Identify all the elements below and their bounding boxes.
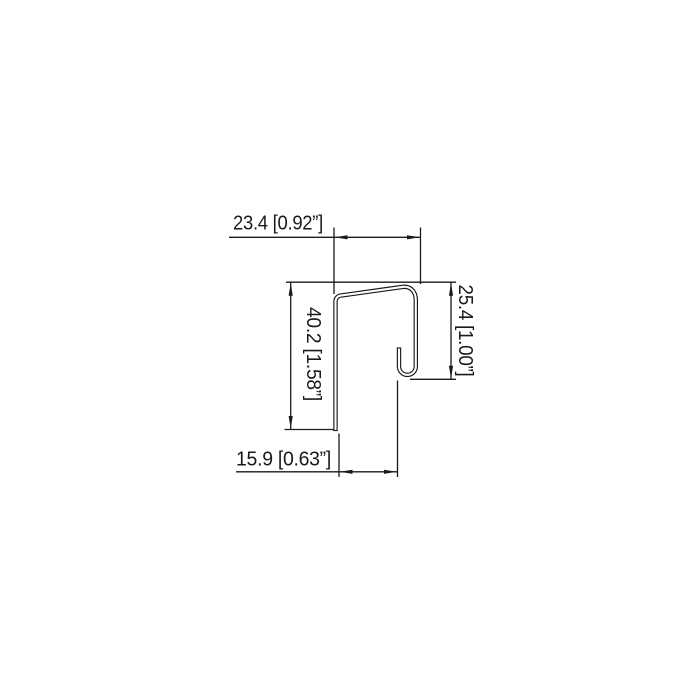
profile-outer-outline (335, 287, 415, 431)
arrowhead-left-icon (335, 235, 348, 239)
arrowhead-left-icon (340, 470, 353, 474)
profile-inner-clear (335, 287, 415, 431)
technical-drawing-canvas: 23.4 [0.92”] 40.2 [1.58”] 25.4 [1.00”] 1… (0, 0, 700, 700)
arrowhead-down-icon (449, 366, 453, 379)
arrowhead-right-icon (384, 470, 397, 474)
technical-drawing-page: 23.4 [0.92”] 40.2 [1.58”] 25.4 [1.00”] 1… (0, 0, 700, 700)
dimension-right-height: 25.4 [1.00”] (410, 282, 476, 379)
profile-cross-section (333, 287, 416, 431)
dimension-label-top: 23.4 [0.92”] (233, 213, 323, 235)
dimension-label-left-height: 40.2 [1.58”] (302, 307, 324, 401)
arrowhead-right-icon (407, 235, 420, 239)
dimension-label-right-height: 25.4 [1.00”] (454, 285, 476, 377)
dimension-label-bottom: 15.9 [0.63”] (236, 449, 331, 471)
arrowhead-up-icon (289, 283, 293, 296)
dimension-left-height: 40.2 [1.58”] (285, 282, 457, 429)
arrowhead-up-icon (449, 283, 453, 296)
arrowhead-down-icon (289, 416, 293, 429)
